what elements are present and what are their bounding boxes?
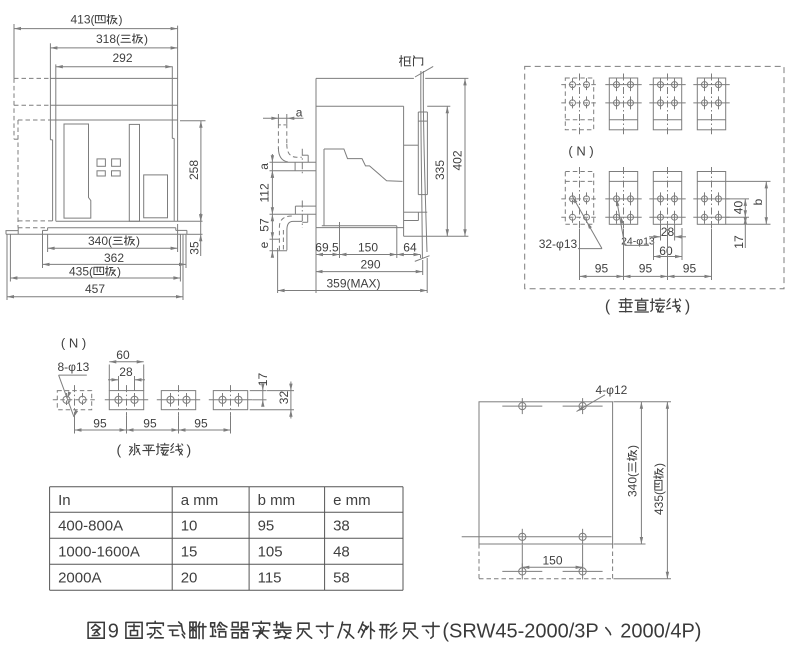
svg-text:95: 95: [194, 417, 208, 431]
svg-text:( N ): ( N ): [568, 144, 593, 159]
svg-text:60: 60: [116, 348, 130, 362]
svg-text:64: 64: [403, 241, 417, 255]
svg-text:20: 20: [181, 570, 198, 587]
svg-text:e: e: [257, 241, 271, 248]
svg-text:4-φ12: 4-φ12: [596, 383, 628, 397]
svg-text:a: a: [257, 163, 271, 170]
svg-text:): ): [136, 234, 140, 248]
svg-text:15: 15: [181, 544, 198, 561]
svg-text:413(: 413(: [71, 13, 95, 27]
svg-text:b mm: b mm: [258, 492, 296, 509]
svg-text:8-φ13: 8-φ13: [58, 360, 90, 374]
svg-text:): ): [117, 264, 121, 278]
svg-text:457: 457: [85, 282, 105, 296]
svg-text:150: 150: [358, 240, 378, 254]
svg-text:2000A: 2000A: [58, 570, 101, 587]
svg-text:318(: 318(: [96, 32, 120, 46]
svg-text:359(MAX): 359(MAX): [327, 276, 381, 290]
svg-text:362: 362: [104, 251, 124, 265]
svg-text:60: 60: [659, 244, 673, 258]
svg-text:150: 150: [543, 553, 563, 567]
svg-text:(: (: [117, 442, 122, 458]
svg-text:292: 292: [113, 51, 133, 65]
svg-text:): ): [187, 442, 192, 458]
svg-text:10: 10: [181, 518, 198, 535]
svg-text:115: 115: [258, 570, 282, 587]
svg-text:112: 112: [257, 183, 271, 202]
svg-text:95: 95: [93, 417, 107, 431]
svg-text:95: 95: [683, 262, 697, 276]
svg-text:40: 40: [731, 201, 745, 215]
svg-text:435(: 435(: [69, 264, 93, 278]
svg-text:95: 95: [143, 417, 157, 431]
svg-text:95: 95: [595, 262, 609, 276]
svg-text:95: 95: [639, 262, 653, 276]
svg-text:In: In: [58, 492, 71, 509]
svg-text:57: 57: [257, 218, 271, 232]
svg-text:69.5: 69.5: [315, 240, 339, 254]
svg-text:335: 335: [433, 160, 447, 180]
svg-text:58: 58: [333, 570, 350, 587]
svg-text:340(: 340(: [625, 473, 639, 497]
svg-text:): ): [652, 463, 666, 467]
svg-text:435(: 435(: [652, 491, 666, 515]
svg-text:9: 9: [108, 621, 119, 643]
svg-text:340(: 340(: [88, 234, 112, 248]
svg-text:): ): [625, 445, 639, 449]
svg-text:38: 38: [333, 518, 350, 535]
svg-text:17: 17: [732, 235, 746, 249]
svg-text:2000/4P): 2000/4P): [620, 621, 701, 643]
svg-text:95: 95: [258, 518, 275, 535]
svg-text:32-φ13: 32-φ13: [539, 237, 578, 251]
svg-text:258: 258: [187, 160, 201, 180]
svg-text:(SRW45-2000/3P: (SRW45-2000/3P: [442, 621, 598, 643]
svg-text:48: 48: [333, 544, 350, 561]
svg-text:17: 17: [256, 373, 270, 387]
svg-text:): ): [685, 298, 690, 315]
svg-text:): ): [144, 32, 148, 46]
svg-text:b: b: [751, 198, 765, 205]
svg-text:e mm: e mm: [333, 492, 371, 509]
svg-text:290: 290: [361, 257, 381, 271]
svg-text:105: 105: [258, 544, 283, 561]
svg-text:35: 35: [187, 241, 201, 255]
svg-text:(: (: [605, 298, 611, 315]
svg-text:1000-1600A: 1000-1600A: [58, 544, 140, 561]
svg-text:28: 28: [119, 365, 133, 379]
svg-text:402: 402: [450, 150, 464, 170]
svg-text:a: a: [296, 106, 303, 120]
svg-text:): ): [119, 13, 123, 27]
svg-text:400-800A: 400-800A: [58, 518, 123, 535]
svg-text:a mm: a mm: [181, 492, 219, 509]
svg-text:( N ): ( N ): [61, 336, 86, 351]
svg-text:32: 32: [277, 391, 291, 405]
